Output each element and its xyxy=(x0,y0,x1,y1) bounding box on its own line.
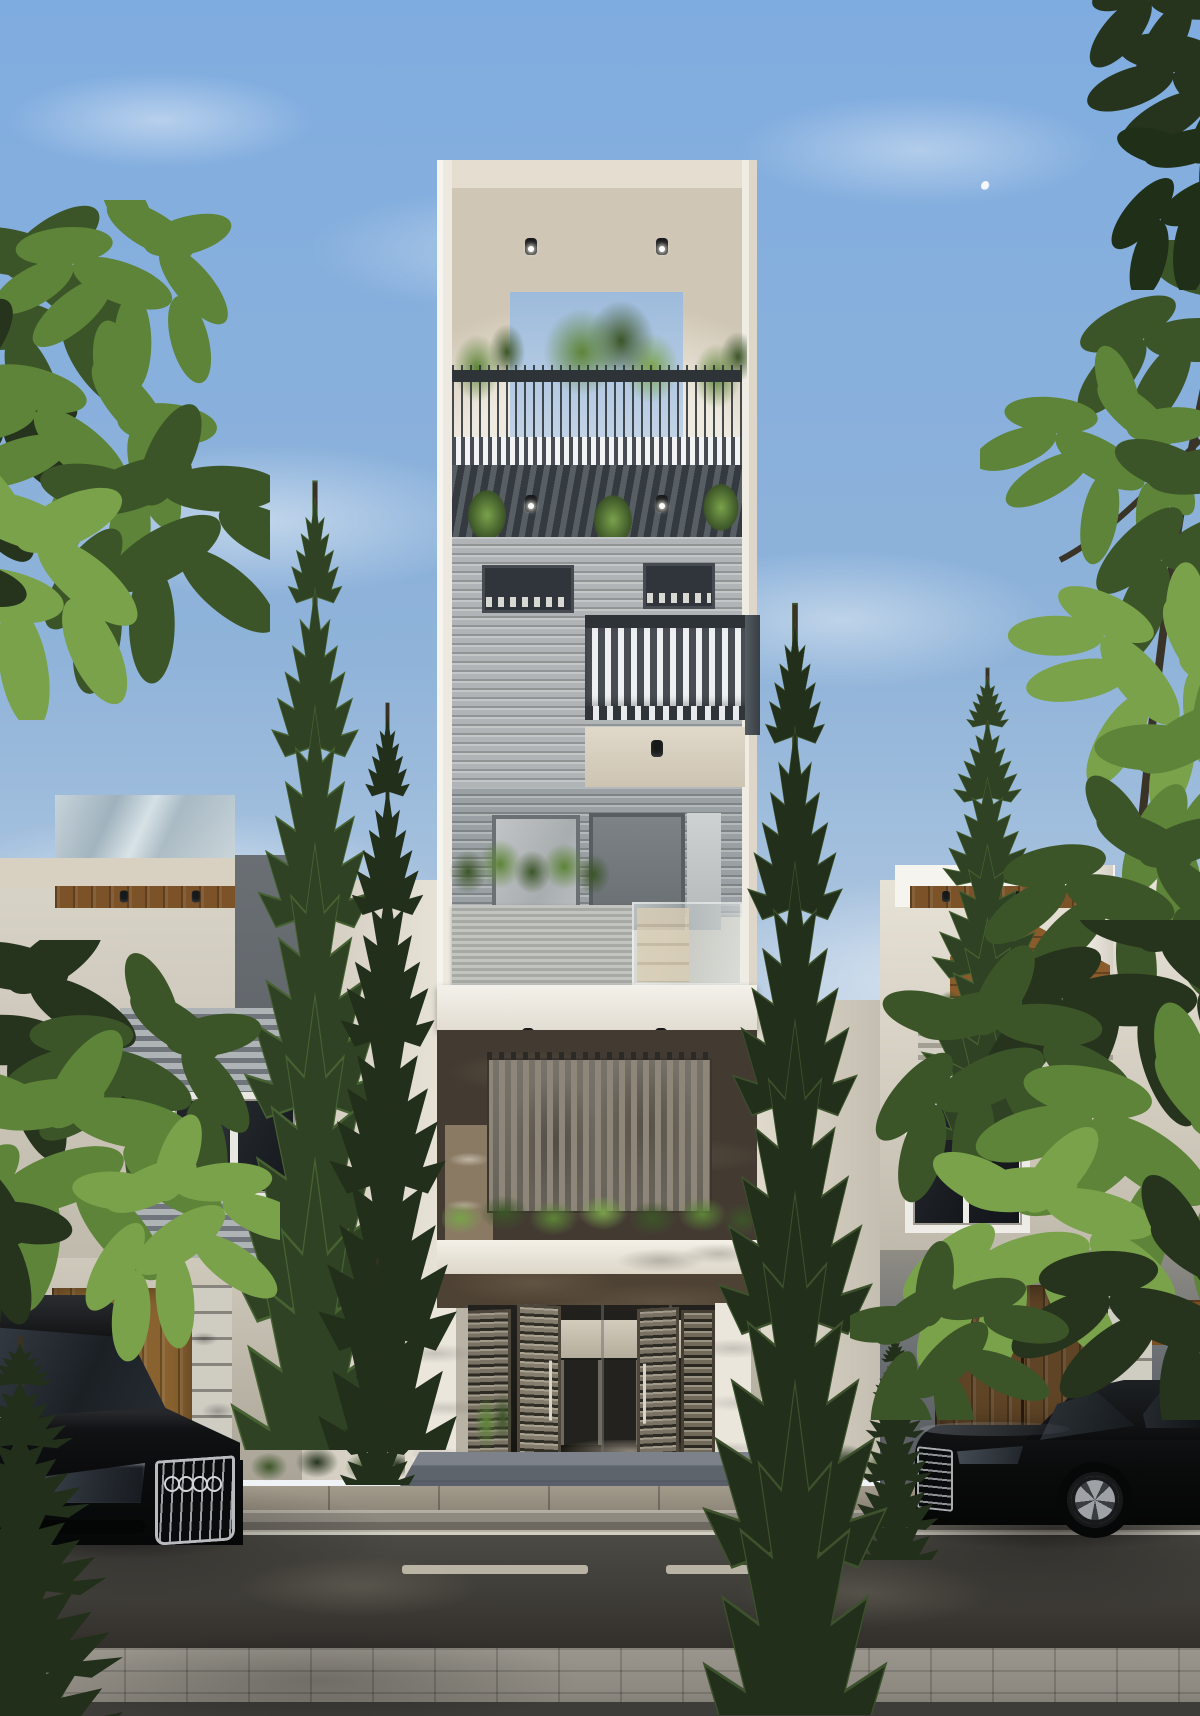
chestnut-canopy-left-mid xyxy=(0,940,280,1370)
upper-window xyxy=(482,565,574,613)
left-soffit-downlight xyxy=(192,891,200,903)
car-grille xyxy=(155,1455,235,1546)
foliage-fringe-top-right xyxy=(1080,0,1200,290)
balcony-downlight xyxy=(651,740,663,757)
terrace-ceiling-light xyxy=(656,238,668,255)
gate-handle xyxy=(643,1364,646,1424)
terrace-railing-top-rail xyxy=(452,370,742,382)
pergola-pendant-light xyxy=(656,495,668,512)
gate-door-open-right xyxy=(517,1304,561,1476)
spruce-sapling-left-curb xyxy=(330,1255,425,1485)
spruce-fringe-bottom-left xyxy=(0,1330,150,1716)
crescent-moon xyxy=(981,181,991,191)
lane-dash xyxy=(402,1565,588,1574)
pergola-pendant-light xyxy=(525,495,537,512)
terrace-ceiling-light xyxy=(525,238,537,255)
window-blind-slits xyxy=(486,597,570,607)
chestnut-canopy-top-left xyxy=(0,200,270,720)
left-soffit-downlight xyxy=(120,891,128,903)
slat-screen-top-connectors xyxy=(487,1052,712,1060)
slat-fascia-band xyxy=(452,437,742,465)
perforated-balustrade-panel xyxy=(452,905,632,985)
gate-door-right-leaf xyxy=(637,1307,679,1475)
chestnut-canopy-top-right xyxy=(980,240,1200,1000)
gate-handle xyxy=(549,1361,552,1421)
scene-architectural-render xyxy=(0,0,1200,1716)
car-front-wheel xyxy=(1057,1462,1133,1538)
audi-rings-logo xyxy=(163,1473,225,1495)
left-roof-glass-railing xyxy=(55,795,235,865)
chestnut-canopy-right-low xyxy=(850,920,1200,1420)
alloy-wheel xyxy=(1071,1476,1119,1524)
